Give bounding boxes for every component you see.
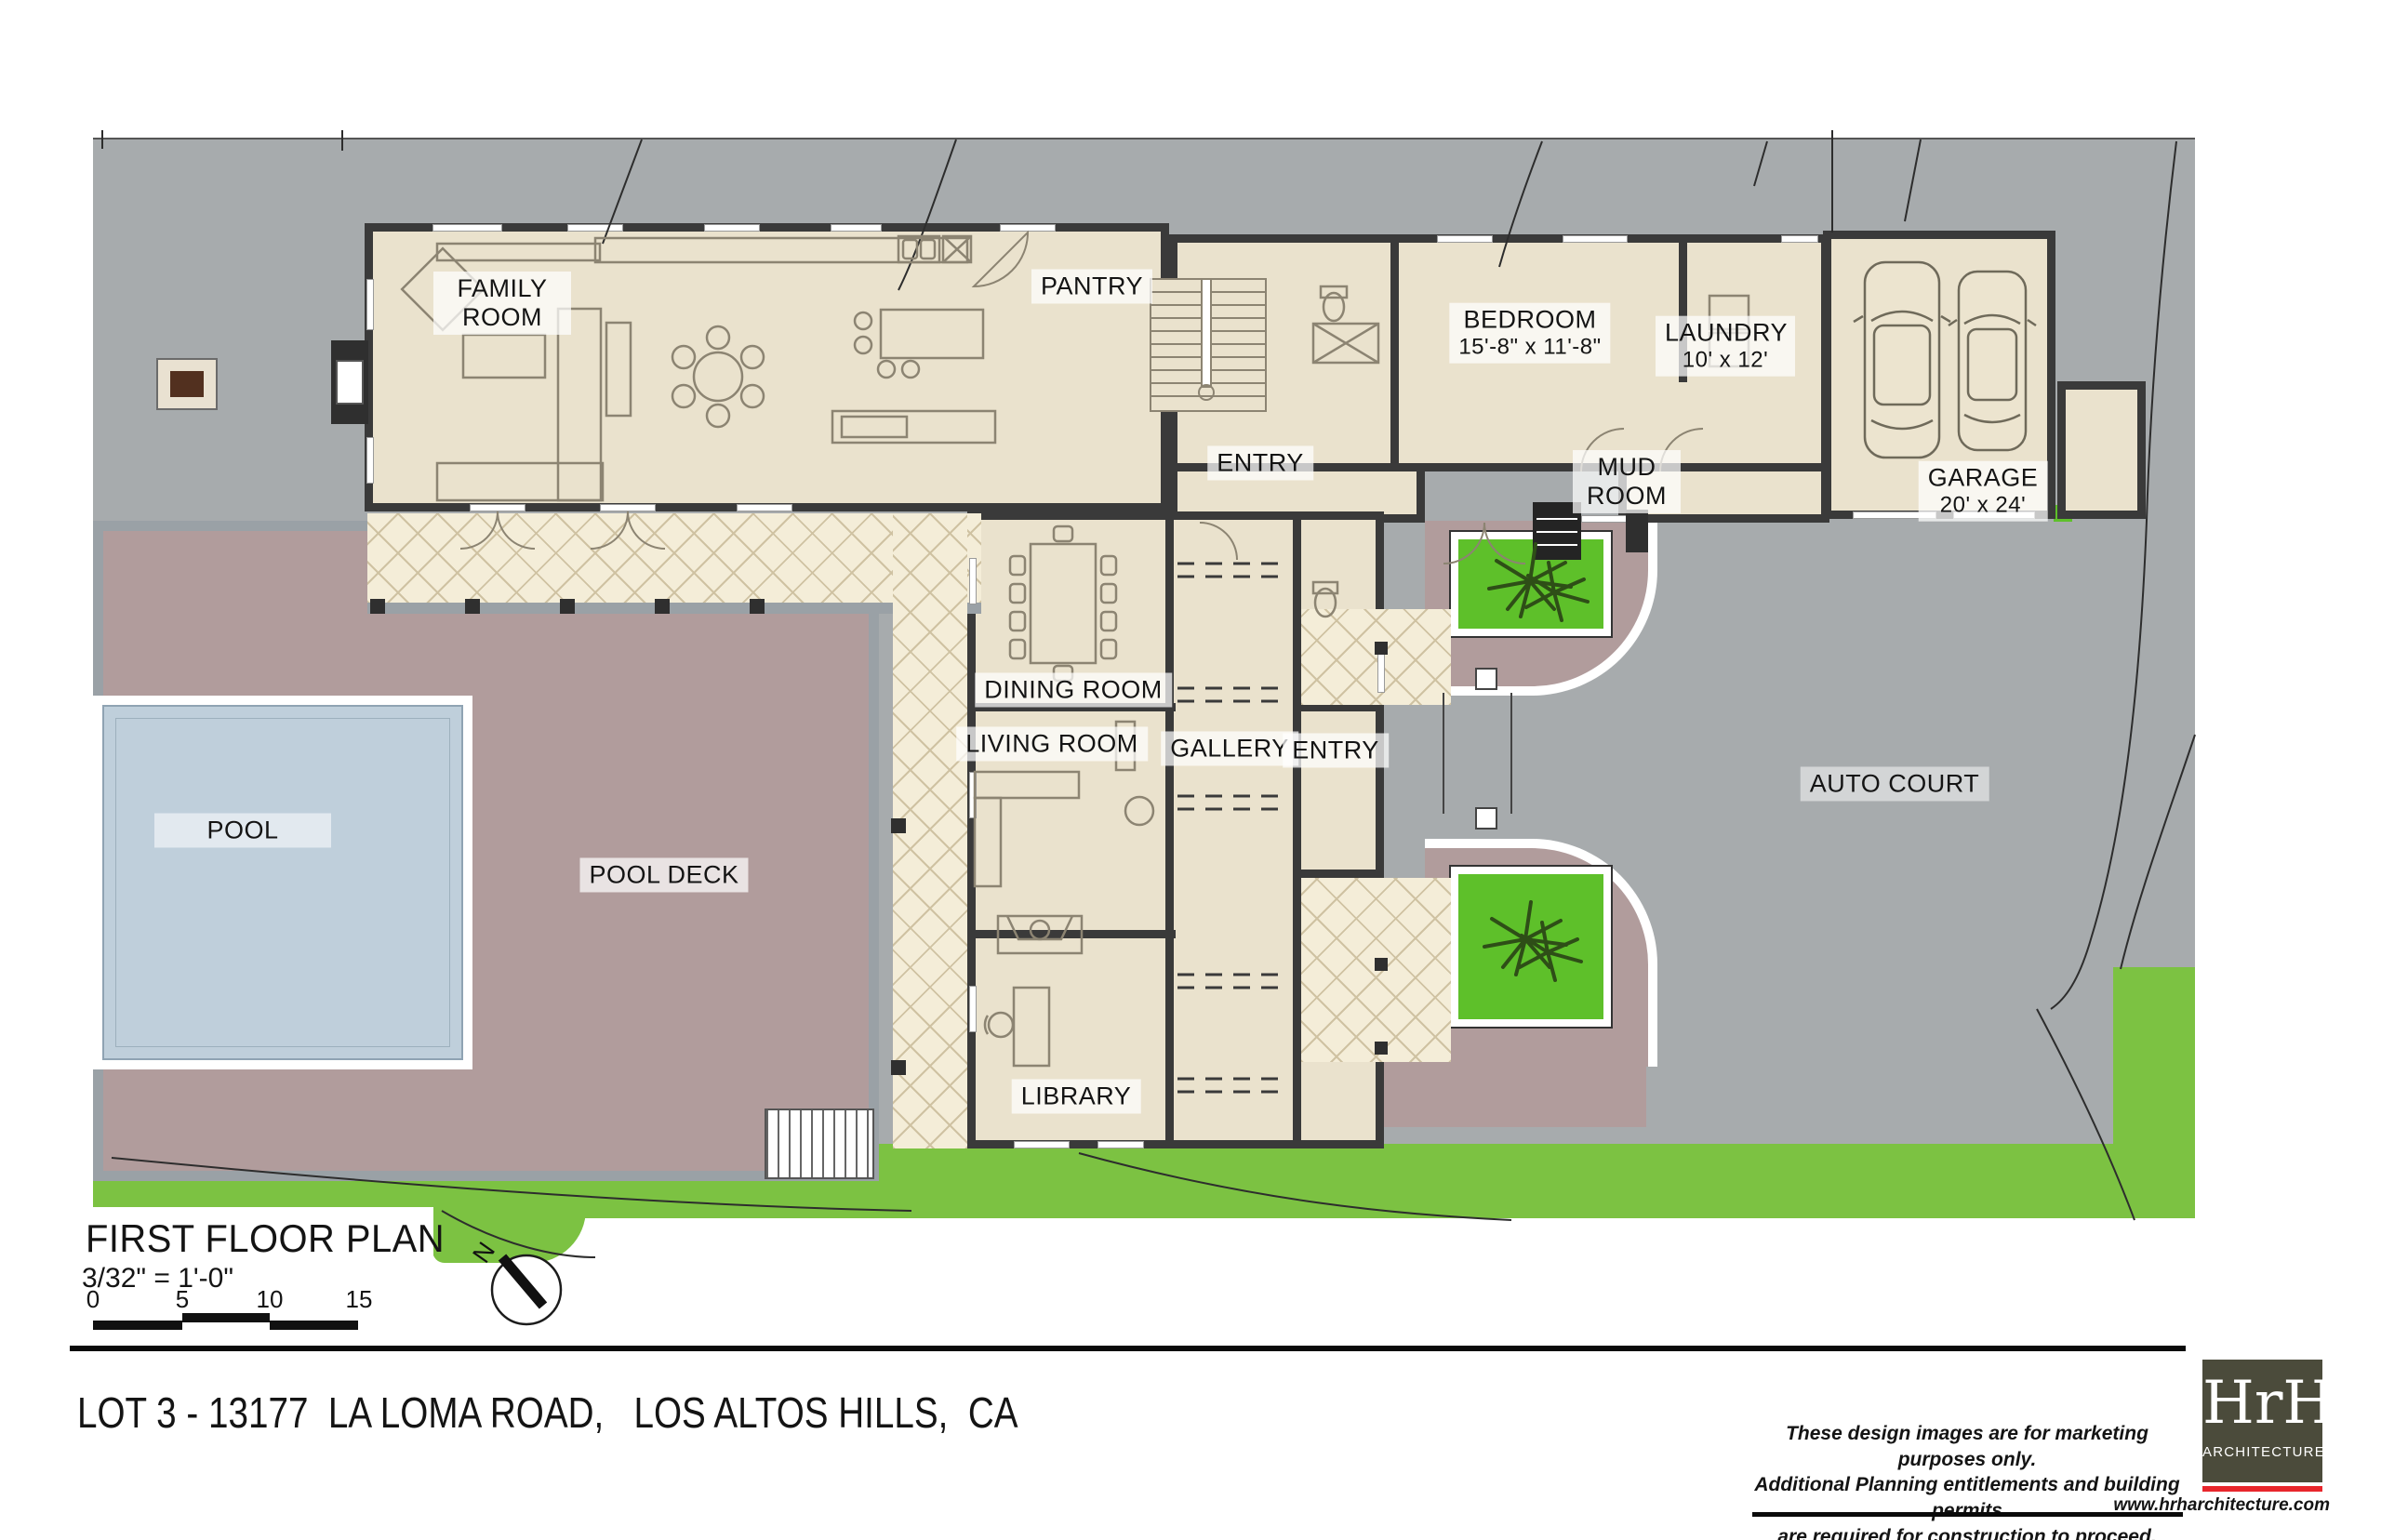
- room-label-bedroom: BEDROOM 15'-8" x 11'-8": [1449, 303, 1610, 364]
- bay-window: [331, 340, 368, 424]
- sheet-address: LOT 3 - 13177 LA LOMA ROAD, LOS ALTOS HI…: [77, 1387, 1018, 1438]
- gallery-dashed-lines: [1177, 564, 1289, 1092]
- room-label-dining-room: DINING ROOM: [975, 672, 1172, 707]
- room-label-entry: ENTRY: [1283, 733, 1389, 767]
- laundry-dims: 10' x 12': [1665, 348, 1786, 374]
- car-icon: [1854, 262, 1950, 458]
- laundry-name: LAUNDRY: [1665, 319, 1788, 347]
- svg-text:N: N: [467, 1237, 500, 1268]
- disclaimer: These design images are for marketing pu…: [1749, 1421, 2186, 1540]
- scale-bar-segment: [270, 1321, 358, 1330]
- architecture-logo: HrH ARCHITECTURE: [2202, 1360, 2322, 1482]
- north-arrow-icon: N: [467, 1237, 561, 1324]
- stair-main: [1151, 279, 1266, 411]
- disclaimer-line-3: are required for construction to proceed…: [1749, 1524, 2186, 1540]
- room-label-living-room: LIVING ROOM: [956, 726, 1148, 761]
- logo-website[interactable]: www.hrharchitecture.com: [2088, 1495, 2330, 1516]
- plant-icon: [1489, 544, 1588, 620]
- logo-red-stripe: [2202, 1486, 2322, 1492]
- garage-dims: 20' x 24': [1928, 493, 2039, 519]
- garage-name: GARAGE: [1928, 464, 2039, 492]
- drawing-scale: 3/32" = 1'-0": [82, 1263, 233, 1294]
- site-label-pool: POOL: [154, 813, 331, 847]
- room-label-family-room: FAMILY ROOM: [433, 272, 571, 335]
- walk-strip-lines: [1443, 693, 1511, 814]
- library-furniture: [985, 988, 1049, 1066]
- room-label-entry-hall: ENTRY: [1207, 445, 1313, 480]
- logo-subtitle: ARCHITECTURE: [2202, 1444, 2322, 1460]
- room-label-mud-room: MUD ROOM: [1573, 450, 1681, 513]
- room-label-garage: GARAGE 20' x 24': [1919, 461, 2048, 522]
- room-label-laundry: LAUNDRY 10' x 12': [1656, 316, 1795, 377]
- room-label-gallery: GALLERY: [1161, 731, 1298, 765]
- dining-furniture: [1010, 526, 1116, 681]
- scale-bar-segment: [93, 1321, 182, 1330]
- logo-monogram: HrH: [2202, 1365, 2322, 1442]
- drawing-title: FIRST FLOOR PLAN: [86, 1216, 445, 1261]
- site-label-pool-deck: POOL DECK: [579, 857, 748, 892]
- garage-steps: [1536, 519, 1577, 545]
- scale-tick-0: 0: [86, 1285, 100, 1314]
- footer-rule: [70, 1346, 2186, 1351]
- car-icon: [1949, 272, 2036, 450]
- room-label-library: LIBRARY: [1012, 1079, 1141, 1113]
- scale-tick-10: 10: [257, 1285, 284, 1314]
- scale-tick-5: 5: [176, 1285, 189, 1314]
- floor-plan-sheet: N FAMILY ROOM PANTRY BEDROOM 15'-8" x 11…: [0, 0, 2381, 1540]
- plant-icon: [1484, 902, 1581, 980]
- disclaimer-line-1: These design images are for marketing pu…: [1749, 1421, 2186, 1472]
- room-label-pantry: PANTRY: [1031, 269, 1152, 303]
- site-label-auto-court: AUTO COURT: [1801, 766, 1989, 801]
- kitchen-fixtures: [595, 236, 995, 443]
- bedroom-dims: 15'-8" x 11'-8": [1458, 335, 1601, 361]
- scale-bar-segment: [182, 1313, 270, 1322]
- bedroom-name: BEDROOM: [1463, 306, 1596, 334]
- scale-tick-15: 15: [346, 1285, 373, 1314]
